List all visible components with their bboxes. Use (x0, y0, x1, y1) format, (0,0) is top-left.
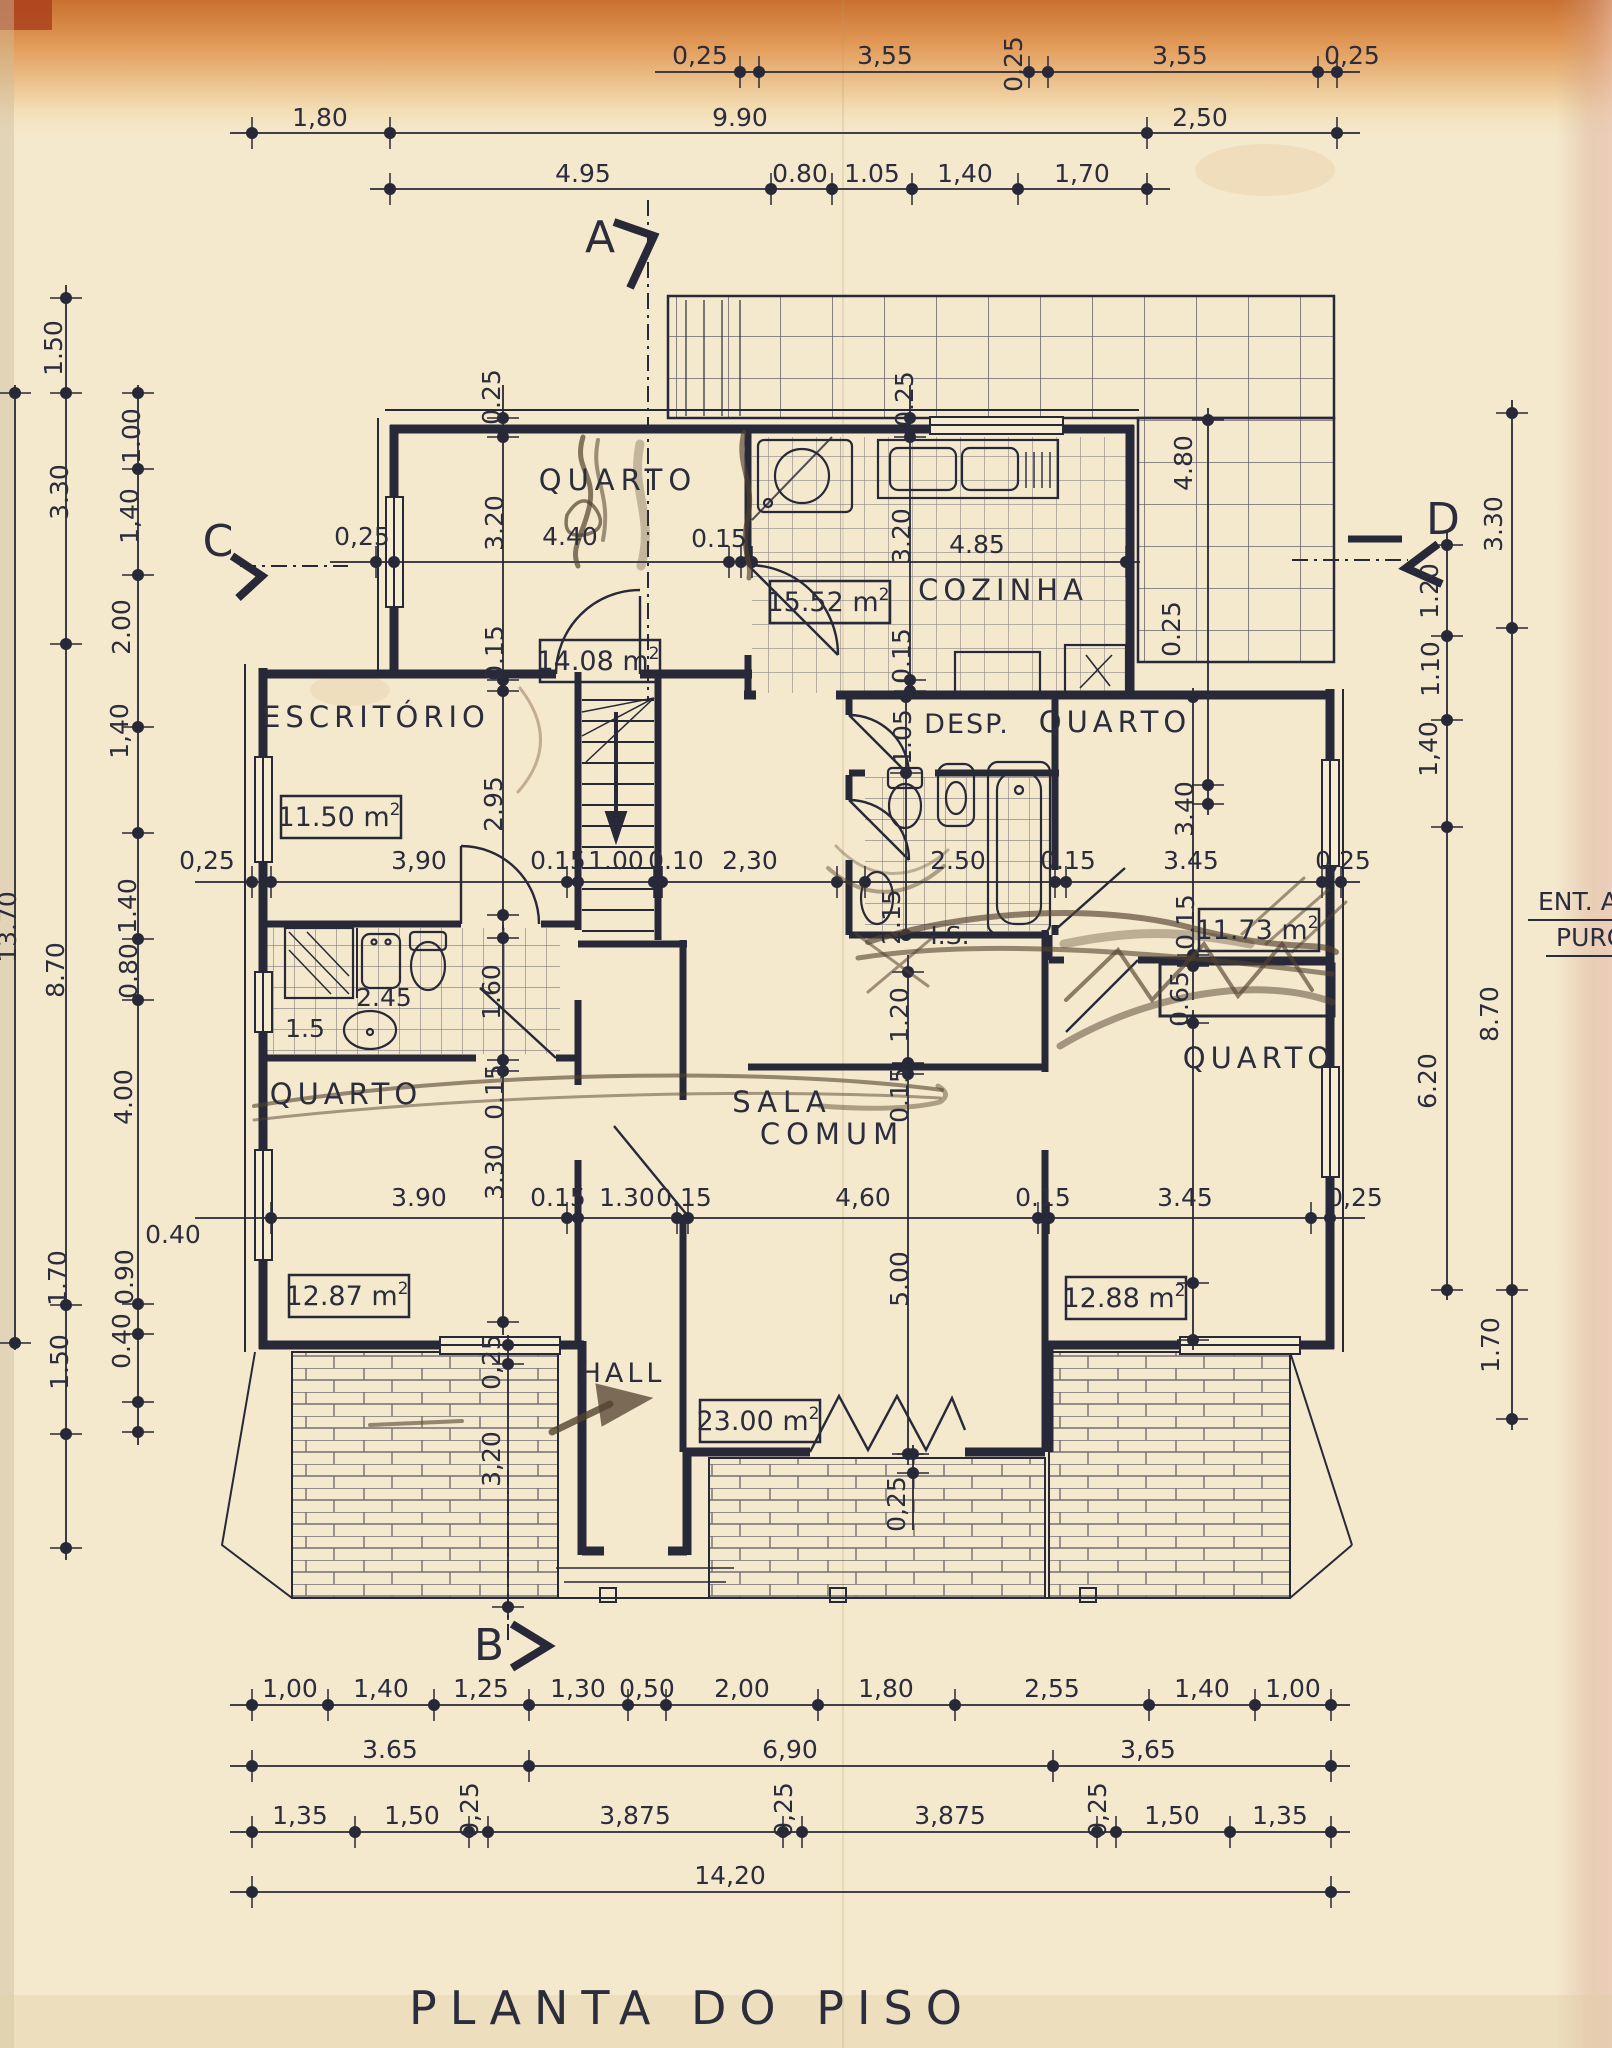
dimension-label: 0.15 (530, 846, 586, 875)
dimension-label: 3,55 (1152, 41, 1208, 70)
dimension-label: 2,55 (1024, 1674, 1080, 1703)
dimension-label: 1,70 (1054, 159, 1110, 188)
dimension-label: 0,25 (1324, 41, 1380, 70)
dimension-label: 0.15 (1015, 1183, 1071, 1212)
kitchen-floor-tiles (752, 437, 1126, 693)
dimension-label: 3.45 (1157, 1183, 1213, 1212)
dimension-label: 1,40 (1174, 1674, 1230, 1703)
section-marker-a: A (585, 212, 615, 263)
dimension-label: 1.30 (599, 1183, 655, 1212)
dimension-label: 2.00 (107, 599, 136, 655)
dimension-label: 1.10 (1416, 641, 1445, 697)
dimension-label: 6,90 (762, 1735, 818, 1764)
dimension-label: 14,20 (694, 1861, 766, 1890)
dimension-label: 0,25 (334, 522, 390, 551)
dimension-label: 3,875 (599, 1801, 671, 1830)
dimension-label: 1,80 (292, 103, 348, 132)
dimension-label: 1,40 (353, 1674, 409, 1703)
dimension-label: 0.15 (480, 1064, 509, 1120)
dimension-label: 0,25 (999, 36, 1028, 92)
dimension-label: 3.45 (1163, 846, 1219, 875)
dimension-label: 1.05 (888, 709, 917, 765)
window (1322, 1067, 1339, 1177)
dimension-label: 4.85 (949, 530, 1005, 559)
side-note-line1: ENT. A (1538, 887, 1612, 916)
window (930, 417, 1063, 434)
dimension-label: 1,35 (1252, 1801, 1308, 1830)
dimension-label: 1.40 (113, 878, 142, 934)
dimension-label: 2,30 (722, 846, 778, 875)
dimension-label: 3,55 (857, 41, 913, 70)
dimension-label: 1,50 (1144, 1801, 1200, 1830)
dimension-label: 3,65 (1120, 1735, 1176, 1764)
dimension-label: 1.5 (285, 1014, 325, 1043)
area-label-bedroom-3: 12.87 m2 (285, 1279, 408, 1312)
dimension-label: 0.90 (110, 1249, 139, 1305)
dimension-label: 0.10 (648, 846, 704, 875)
dimension-label: 6.20 (1413, 1053, 1442, 1109)
section-marker-b: B (474, 1620, 504, 1671)
dimension-label: 1.50 (45, 1334, 74, 1390)
room-label-bedroom-2: QUARTO (1039, 705, 1191, 739)
dimension-label: 1.00 (117, 408, 146, 464)
dimension-label: 3.65 (362, 1735, 418, 1764)
dimension-label: 0,25 (179, 846, 235, 875)
dimension-label: 0.40 (107, 1313, 136, 1369)
dimension-label: 2.95 (479, 776, 508, 832)
area-label-office: 11.50 m2 (277, 800, 400, 833)
dimension-label: 3.30 (45, 464, 74, 520)
dimension-label: 0,25 (1327, 1183, 1383, 1212)
dimension-label: 0,25 (1083, 1782, 1112, 1838)
dimension-label: 0,50 (619, 1674, 675, 1703)
dimension-label: 4.40 (542, 522, 598, 551)
dimension-label: 1.20 (1415, 563, 1444, 619)
dimension-label: 3,875 (914, 1801, 986, 1830)
room-label-office: ESCRITÓRIO (262, 700, 490, 734)
area-label-bedroom-4: 12.88 m2 (1062, 1281, 1185, 1314)
dimension-label: 3.30 (1479, 496, 1508, 552)
window (255, 972, 272, 1032)
dimension-label: 2,00 (714, 1674, 770, 1703)
room-label-hall: HALL (581, 1358, 666, 1389)
area-label-bedroom-2: 11.73 m2 (1195, 913, 1318, 946)
dimension-label: 1.00 (588, 846, 644, 875)
dimension-label: 1,40 (937, 159, 993, 188)
dimension-label: 1,30 (550, 1674, 606, 1703)
dimension-label: 2,50 (1172, 103, 1228, 132)
room-label-pantry: DESP. (924, 709, 1010, 740)
floor-plan-drawing: 0,253,550,253,550,251,809.902,504.950.80… (0, 0, 1612, 2048)
dimension-label: 1,00 (262, 1674, 318, 1703)
dimension-label: 2.50 (930, 846, 986, 875)
side-note-line2: PURO (1556, 923, 1612, 952)
room-label-kitchen: COZINHA (918, 573, 1088, 607)
dimension-label: 1,50 (384, 1801, 440, 1830)
dimension-label: 1.70 (1476, 1317, 1505, 1373)
dimension-label: 1,25 (453, 1674, 509, 1703)
dimension-label: 1,40 (105, 703, 134, 759)
room-label-bedroom-3: QUARTO (270, 1077, 422, 1111)
scanned-floor-plan-page: 0,253,550,253,550,251,809.902,504.950.80… (0, 0, 1612, 2048)
dimension-label: 0,25 (672, 41, 728, 70)
dimension-label: 0.80 (114, 943, 143, 999)
dimension-label: 0.15 (887, 628, 916, 684)
dimension-label: 4.80 (1169, 435, 1198, 491)
dimension-label: 3.40 (1170, 781, 1199, 837)
dimension-label: 0.15 (885, 1067, 914, 1123)
dimension-label: 13.70 (0, 891, 22, 963)
window (255, 757, 272, 862)
dimension-label: 0,25 (882, 1476, 911, 1532)
dimension-label: 3.20 (887, 508, 916, 564)
dimension-label: 8.70 (41, 942, 70, 998)
section-marker-c: C (203, 516, 234, 567)
dimension-label: 4,60 (835, 1183, 891, 1212)
dimension-label: 0.25 (1157, 601, 1186, 657)
dimension-label: 0.15 (480, 625, 509, 681)
dimension-label: 0,25 (455, 1782, 484, 1838)
dimension-label: 1.05 (844, 159, 900, 188)
dimension-label: 3,20 (477, 1431, 506, 1487)
room-label-bedroom-4: QUARTO (1183, 1041, 1335, 1075)
section-marker-d: D (1426, 494, 1460, 545)
dimension-label: 3.30 (480, 1144, 509, 1200)
dimension-label: 2.15 (877, 889, 906, 945)
area-label-bedroom-1: 14.08 m2 (536, 644, 659, 677)
dimension-label: 0.40 (145, 1220, 201, 1249)
dimension-label: 1.20 (885, 987, 914, 1043)
dimension-label: 0.25 (477, 369, 506, 425)
dimension-label: 1.70 (43, 1250, 72, 1306)
dimension-label: 1,00 (1265, 1674, 1321, 1703)
dimension-label: 0.15 (1040, 846, 1096, 875)
dimension-label: 0,25 (769, 1782, 798, 1838)
dimension-label: 9.90 (712, 103, 768, 132)
dimension-label: 1,40 (115, 488, 144, 544)
dimension-label: 4.00 (109, 1069, 138, 1125)
dimension-label: 0.65 (1165, 971, 1194, 1027)
dimension-label: 0.80 (772, 159, 828, 188)
dimension-label: 0.25 (890, 371, 919, 427)
window (255, 1150, 272, 1260)
area-label-living-room: 23.00 m2 (696, 1404, 819, 1437)
dimension-label: 4.95 (555, 159, 611, 188)
dimension-label: 3,90 (391, 846, 447, 875)
dimension-label: 1,40 (1414, 721, 1443, 777)
dimension-label: 1,80 (858, 1674, 914, 1703)
room-label-wc: I.S. (930, 921, 969, 950)
dimension-label: 0.15 (656, 1183, 712, 1212)
dimension-label: 8.70 (1475, 986, 1504, 1042)
dimension-label: 1.50 (39, 320, 68, 376)
dimension-label: 3.90 (391, 1183, 447, 1212)
dimension-label: 0,25 (477, 1334, 506, 1390)
room-label-bedroom-1: QUARTO (539, 463, 697, 497)
dimension-label: 3.20 (480, 495, 509, 551)
dimension-label: 5.00 (885, 1251, 914, 1307)
dimension-label: 1.60 (477, 964, 506, 1020)
dimension-label: 0,25 (1315, 846, 1371, 875)
dimension-label: 2.45 (356, 983, 412, 1012)
drawing-title: PLANTA DO PISO (409, 1981, 975, 2035)
dimension-label: 1,35 (272, 1801, 328, 1830)
area-label-kitchen: 15.52 m2 (766, 585, 889, 618)
dimension-label: 0.15 (691, 524, 747, 553)
dimension-label: 0.15 (530, 1183, 586, 1212)
